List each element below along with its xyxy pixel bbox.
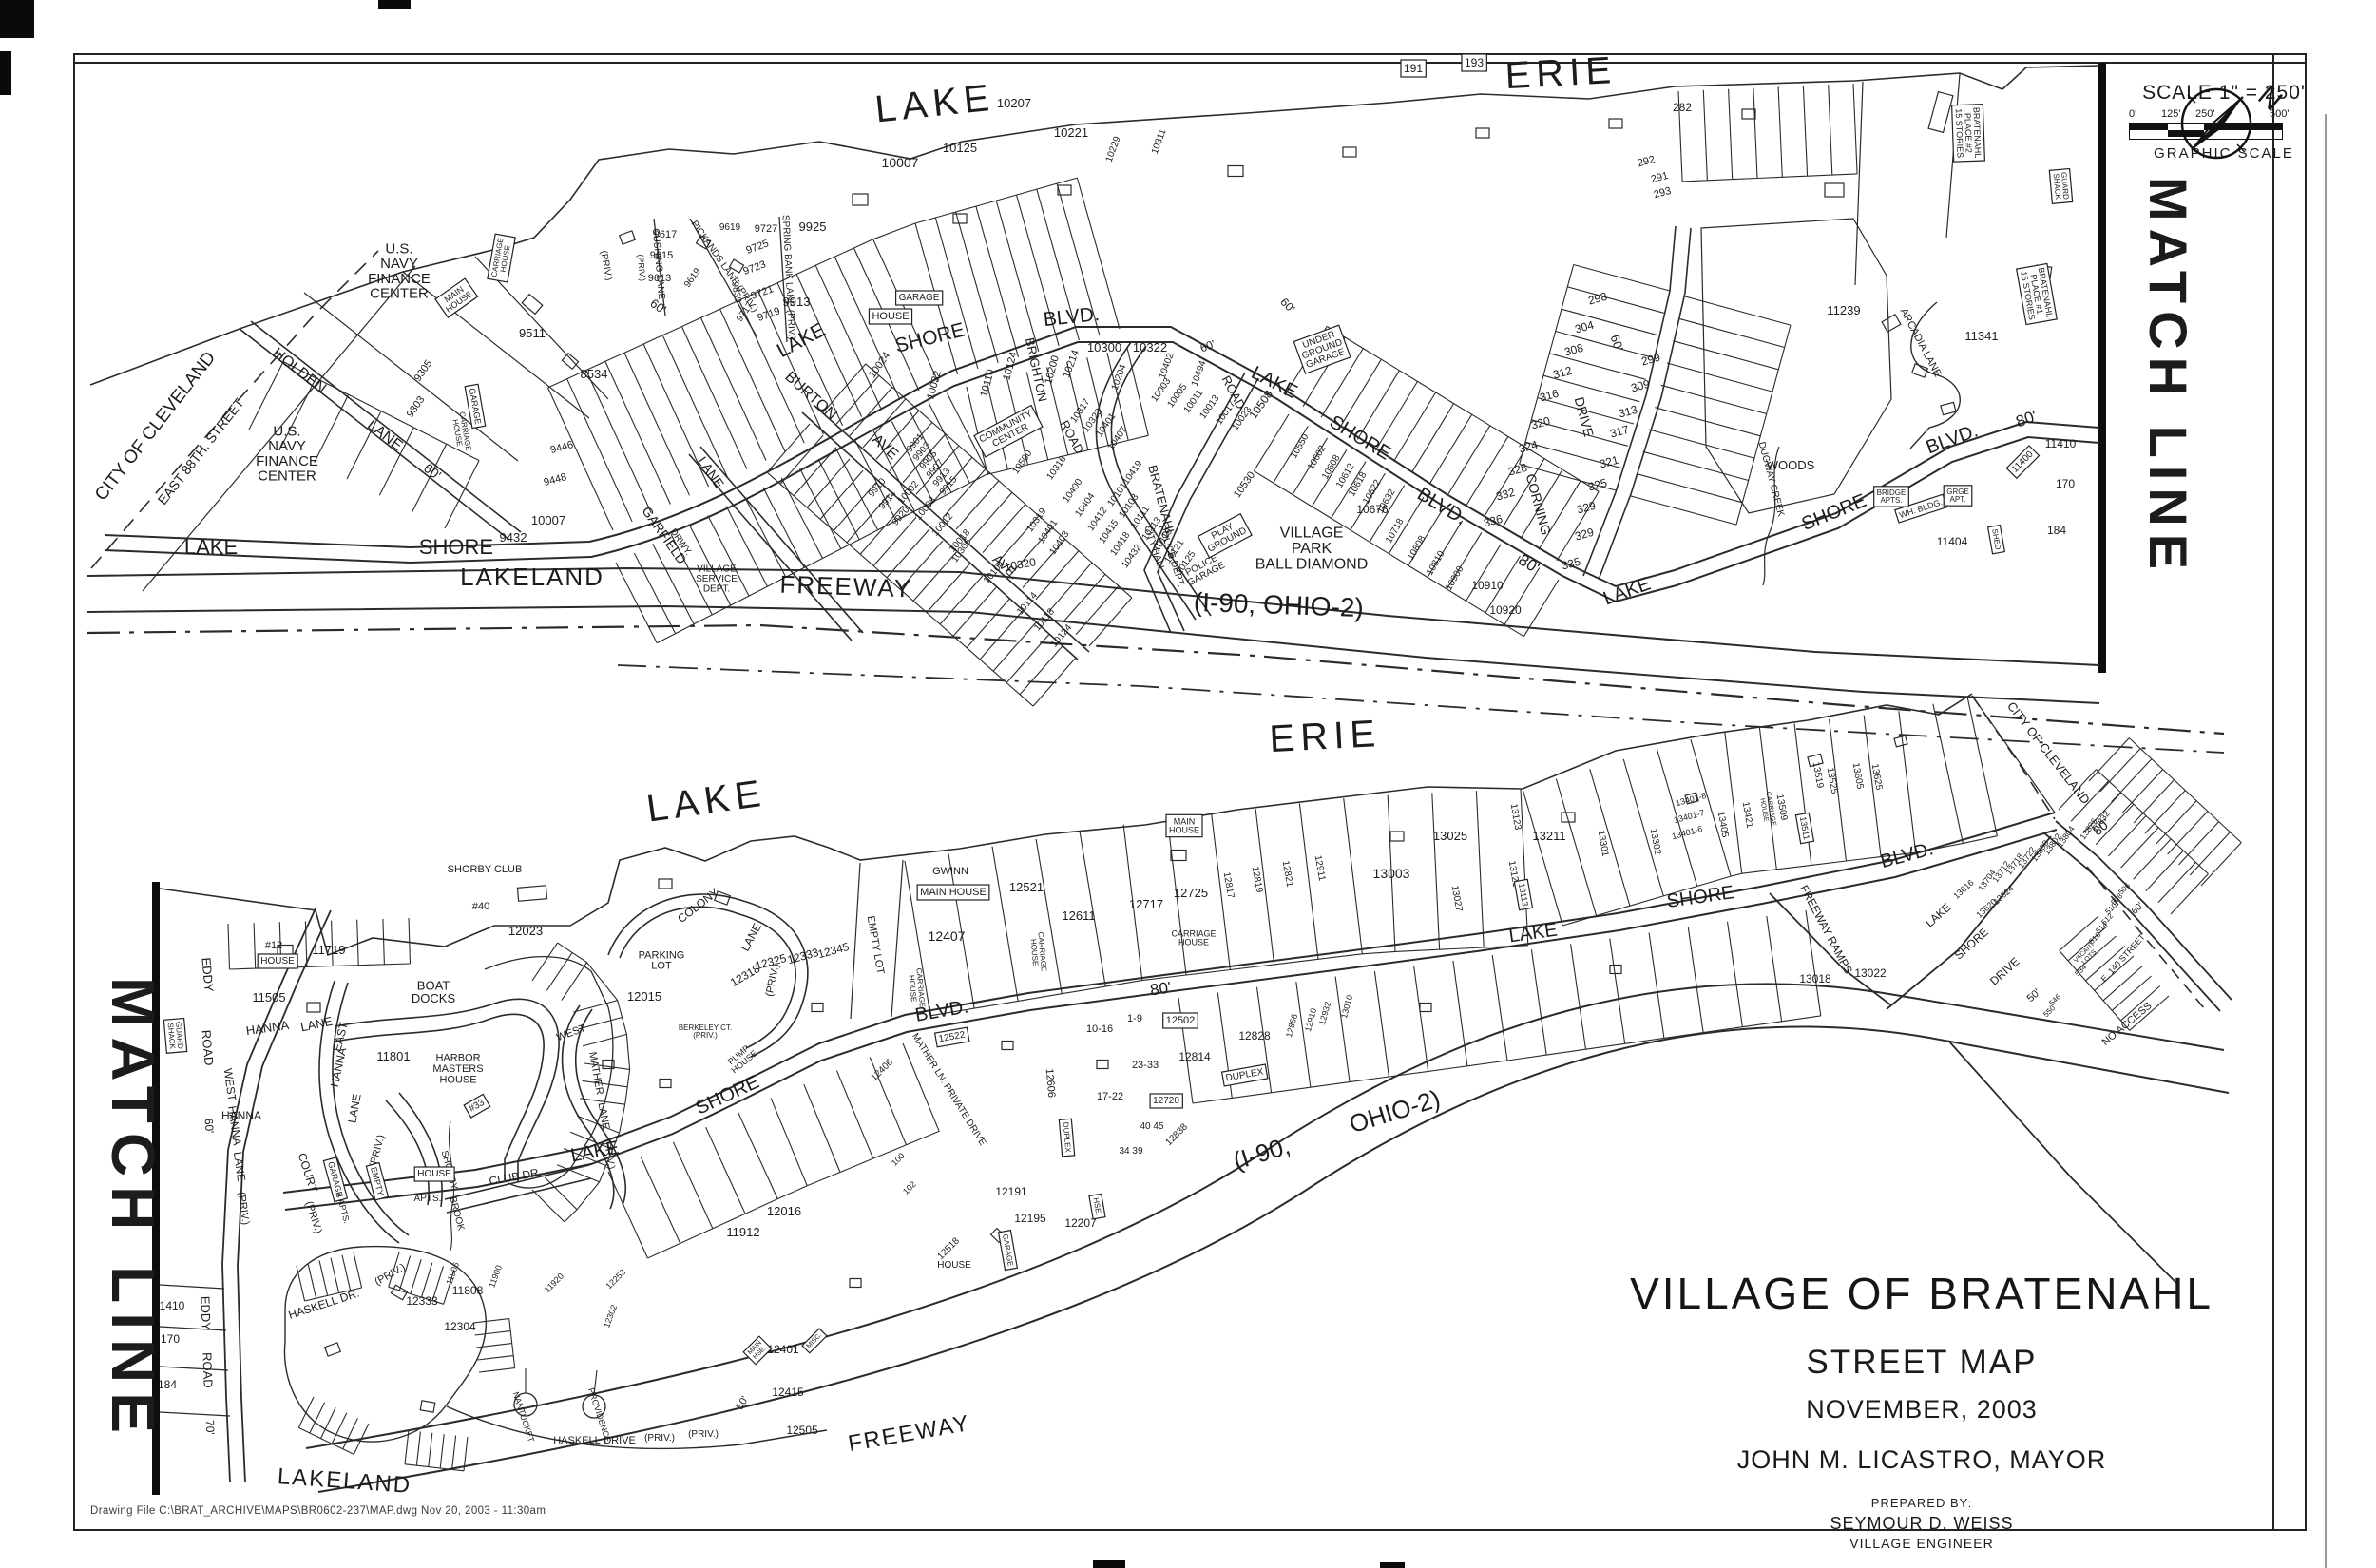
svg-text:23-33: 23-33 bbox=[1132, 1060, 1159, 1071]
svg-text:HARBORMASTERSHOUSE: HARBORMASTERSHOUSE bbox=[432, 1053, 483, 1086]
svg-text:308: 308 bbox=[1562, 341, 1584, 359]
svg-text:SHORE: SHORE bbox=[1665, 882, 1734, 912]
map-label: 9925 bbox=[799, 220, 827, 234]
map-label: 9303 bbox=[405, 394, 428, 420]
svg-text:9925: 9925 bbox=[799, 220, 827, 234]
svg-text:BLVD.: BLVD. bbox=[1924, 420, 1981, 458]
svg-text:332: 332 bbox=[1494, 486, 1516, 504]
map-label: LAKELAND bbox=[460, 563, 604, 591]
map-label: 11912 bbox=[726, 1225, 759, 1239]
svg-text:CITY OF CLEVELAND: CITY OF CLEVELAND bbox=[2004, 699, 2093, 807]
map-label: GRGEAPT. bbox=[1944, 486, 1972, 506]
map-label: 13123 bbox=[1508, 803, 1523, 832]
svg-text:1410: 1410 bbox=[160, 1299, 185, 1312]
map-label: 12821 bbox=[1280, 860, 1295, 889]
prepared-by-label: PREPARED BY: bbox=[1627, 1496, 2216, 1510]
svg-text:12015: 12015 bbox=[627, 989, 661, 1004]
map-label: 292 bbox=[1637, 154, 1657, 169]
svg-text:11920: 11920 bbox=[543, 1272, 565, 1294]
svg-text:11801: 11801 bbox=[376, 1049, 410, 1063]
map-label: 12838 bbox=[1164, 1121, 1191, 1148]
map-label: HASKELL DR. bbox=[287, 1287, 361, 1322]
map-label: 9725 bbox=[744, 238, 770, 257]
map-label: OHIO-2) bbox=[1346, 1084, 1444, 1138]
svg-text:184: 184 bbox=[2047, 524, 2066, 537]
map-label: 9446 bbox=[549, 439, 575, 456]
map-label: 12606 bbox=[1044, 1068, 1058, 1099]
svg-text:12911: 12911 bbox=[1313, 854, 1328, 882]
svg-text:LANE: LANE bbox=[738, 921, 764, 953]
svg-text:LAKE: LAKE bbox=[1507, 920, 1559, 947]
map-label: 12406 bbox=[870, 1057, 896, 1083]
svg-text:9913: 9913 bbox=[783, 295, 811, 309]
map-label: 11920 bbox=[543, 1272, 565, 1294]
map-label: 10110 bbox=[978, 368, 996, 398]
svg-text:VILLAGESERVICEDEPT.: VILLAGESERVICEDEPT. bbox=[696, 564, 738, 595]
building-footprints bbox=[278, 92, 2052, 1413]
map-label: #12 bbox=[265, 940, 282, 951]
map-label: 282 bbox=[1673, 101, 1692, 114]
map-label: 12023 bbox=[508, 924, 543, 938]
parcel-lot-lines bbox=[228, 84, 2241, 1471]
svg-text:BROOK: BROOK bbox=[447, 1195, 466, 1232]
drawing-file-note: Drawing File C:\BRAT_ARCHIVE\MAPS\BR0602… bbox=[90, 1505, 546, 1517]
svg-text:12191: 12191 bbox=[995, 1185, 1027, 1198]
scanned-street-map-sheet: MATCH LINEMATCH LINELAKEERIELAKEERIELAKE… bbox=[0, 0, 2376, 1568]
map-label: 80' bbox=[1515, 550, 1542, 577]
map-label: ROAD bbox=[1058, 418, 1087, 456]
map-label: 13625 bbox=[1869, 763, 1885, 792]
svg-text:13624: 13624 bbox=[1991, 884, 2015, 907]
svg-text:291: 291 bbox=[1650, 170, 1670, 185]
map-label: 11400 bbox=[2006, 446, 2039, 478]
map-label: 11906 bbox=[444, 1261, 461, 1286]
map-label: CARRIAGEHOUSE bbox=[488, 234, 515, 282]
svg-text:12717: 12717 bbox=[1129, 897, 1163, 911]
svg-text:13010: 13010 bbox=[1339, 994, 1354, 1020]
map-label: COURT bbox=[296, 1151, 321, 1194]
map-label: 317 bbox=[1608, 423, 1630, 441]
map-label: FREEWAY bbox=[779, 570, 913, 603]
svg-text:317: 317 bbox=[1608, 423, 1630, 441]
svg-text:VILLAGEPARKBALL DIAMOND: VILLAGEPARKBALL DIAMOND bbox=[1255, 525, 1369, 572]
svg-text:CARRIAGEHOUSE: CARRIAGEHOUSE bbox=[1757, 791, 1776, 828]
svg-text:10530: 10530 bbox=[1232, 469, 1257, 500]
lake-erie-label: ERIE bbox=[1504, 49, 1619, 97]
svg-text:11239: 11239 bbox=[1827, 303, 1860, 317]
lake-erie-label: ERIE bbox=[1269, 713, 1383, 760]
svg-text:#40: #40 bbox=[472, 901, 489, 912]
svg-text:SHORE: SHORE bbox=[1952, 926, 1991, 963]
svg-text:CARRIAGEHOUSE: CARRIAGEHOUSE bbox=[1028, 931, 1048, 972]
map-label: LAKE bbox=[1507, 920, 1559, 947]
map-label: 70' bbox=[203, 1420, 218, 1435]
svg-text:LAKE: LAKE bbox=[644, 773, 769, 831]
map-label: 184 bbox=[2047, 524, 2066, 537]
svg-text:70': 70' bbox=[203, 1420, 218, 1435]
map-label: 11410 bbox=[2045, 437, 2077, 450]
map-label: 1410 bbox=[160, 1299, 185, 1312]
svg-text:10200: 10200 bbox=[1043, 354, 1062, 386]
map-label: BRIDGEAPTS. bbox=[1874, 487, 1909, 507]
svg-text:9619: 9619 bbox=[719, 222, 741, 233]
map-label: 13301 bbox=[1596, 830, 1611, 858]
map-label: MISC. bbox=[802, 1329, 827, 1353]
svg-text:ROAD: ROAD bbox=[1058, 418, 1087, 456]
map-label: SHORE bbox=[693, 1072, 763, 1119]
map-label: PLAYGROUND bbox=[1198, 514, 1252, 558]
svg-text:10550: 10550 bbox=[1289, 432, 1312, 461]
svg-text:13301: 13301 bbox=[1596, 830, 1611, 858]
svg-text:12304: 12304 bbox=[444, 1320, 476, 1333]
svg-text:9615: 9615 bbox=[650, 250, 673, 261]
map-label: LANE bbox=[364, 417, 405, 454]
map-label: 10032 bbox=[925, 370, 944, 401]
svg-text:MATHER LN. PRIVATE DRIVE: MATHER LN. PRIVATE DRIVE bbox=[910, 1032, 987, 1148]
svg-text:12819: 12819 bbox=[1250, 866, 1265, 894]
scale-tick: 0' bbox=[2129, 108, 2136, 120]
map-label: ROAD bbox=[200, 1352, 215, 1388]
map-label: 304 bbox=[1573, 318, 1595, 336]
map-label: 308 bbox=[1562, 341, 1584, 359]
svg-text:10920: 10920 bbox=[1489, 603, 1522, 617]
svg-text:13616: 13616 bbox=[1951, 878, 1975, 901]
svg-text:10221: 10221 bbox=[1054, 125, 1088, 140]
svg-text:12606: 12606 bbox=[1044, 1068, 1058, 1099]
svg-text:10311: 10311 bbox=[1150, 127, 1169, 156]
map-label: 80' bbox=[1149, 979, 1173, 1000]
svg-text:CARRIAGEHOUSE: CARRIAGEHOUSE bbox=[907, 967, 927, 1008]
map-label: 9432 bbox=[500, 530, 527, 545]
svg-text:309: 309 bbox=[1629, 377, 1651, 395]
map-label: 11900 bbox=[487, 1264, 504, 1289]
svg-text:282: 282 bbox=[1673, 101, 1692, 114]
map-label: 13401-8 bbox=[1675, 791, 1707, 808]
svg-text:HOUSE: HOUSE bbox=[260, 956, 295, 966]
scale-tick: 500' bbox=[2270, 108, 2289, 120]
svg-text:LAKE: LAKE bbox=[1923, 901, 1953, 930]
svg-text:312: 312 bbox=[1551, 364, 1573, 382]
map-label: SHED bbox=[1988, 526, 2005, 554]
map-label: 13018 bbox=[1799, 972, 1831, 985]
map-label: 13519 bbox=[1811, 761, 1826, 790]
svg-text:9619: 9619 bbox=[682, 266, 703, 290]
svg-text:10012: 10012 bbox=[930, 511, 956, 539]
svg-text:9432: 9432 bbox=[500, 530, 527, 545]
map-label: 10550 bbox=[1289, 432, 1312, 461]
svg-text:ROAD: ROAD bbox=[199, 1029, 216, 1066]
map-label: 10808 bbox=[1406, 534, 1428, 563]
map-label: HANNA bbox=[221, 1109, 261, 1122]
svg-text:10214: 10214 bbox=[1061, 349, 1082, 380]
svg-text:LANE: LANE bbox=[345, 1093, 363, 1124]
svg-text:170: 170 bbox=[2056, 477, 2075, 490]
svg-text:HOUSE: HOUSE bbox=[872, 311, 909, 322]
svg-text:SHORBY CLUB: SHORBY CLUB bbox=[448, 864, 523, 875]
map-label: 10214 bbox=[1061, 349, 1082, 380]
map-label: 12407 bbox=[929, 928, 966, 944]
map-label: (PRIV.) bbox=[644, 1433, 675, 1444]
map-label: 11719 bbox=[312, 943, 345, 957]
svg-text:LAKE: LAKE bbox=[873, 77, 997, 131]
svg-text:12253: 12253 bbox=[604, 1267, 627, 1291]
svg-text:GUARDSHACK: GUARDSHACK bbox=[2052, 172, 2071, 201]
svg-text:HANNA: HANNA bbox=[245, 1018, 290, 1038]
map-label: 13616 bbox=[1951, 878, 1975, 901]
svg-text:(PRIV.): (PRIV.) bbox=[644, 1433, 675, 1444]
map-label: 12819 bbox=[1250, 866, 1265, 894]
svg-text:13605: 13605 bbox=[1850, 762, 1866, 791]
map-label: VILLAGESERVICEDEPT. bbox=[696, 564, 738, 595]
svg-text:GWINN: GWINN bbox=[932, 866, 968, 877]
map-label: GARAGE bbox=[999, 1231, 1018, 1271]
map-label: 321 bbox=[1598, 453, 1619, 471]
map-label: 12518 bbox=[936, 1235, 963, 1262]
svg-text:12415: 12415 bbox=[772, 1386, 804, 1399]
map-label: 12345 bbox=[816, 940, 851, 961]
map-label: LANE bbox=[345, 1093, 363, 1124]
svg-text:12016: 12016 bbox=[767, 1204, 801, 1218]
svg-text:12502: 12502 bbox=[1166, 1015, 1196, 1026]
map-label: MAIN HOUSE bbox=[917, 885, 989, 900]
svg-text:SHORE: SHORE bbox=[1799, 490, 1869, 535]
svg-text:GRGEAPT.: GRGEAPT. bbox=[1946, 488, 1969, 504]
svg-text:CARRIAGEHOUSE: CARRIAGEHOUSE bbox=[1171, 928, 1216, 947]
svg-text:LANE: LANE bbox=[299, 1014, 335, 1035]
svg-text:13302: 13302 bbox=[1648, 828, 1663, 856]
svg-text:13401-7: 13401-7 bbox=[1673, 808, 1705, 825]
map-label: 10676 bbox=[1356, 503, 1389, 516]
map-label: LAKE bbox=[1600, 573, 1654, 609]
map-label: 8534 bbox=[581, 367, 608, 381]
map-label: 10007 bbox=[882, 155, 919, 170]
map-label: BOATDOCKS bbox=[412, 978, 456, 1005]
map-label: WEST bbox=[555, 1023, 587, 1043]
svg-text:12518: 12518 bbox=[936, 1235, 963, 1262]
map-label: EMPTY LOT bbox=[865, 915, 887, 976]
svg-text:10110: 10110 bbox=[978, 368, 996, 398]
map-label: 23-33 bbox=[1132, 1060, 1159, 1071]
map-label: 316 bbox=[1538, 387, 1560, 405]
svg-text:60': 60' bbox=[1277, 296, 1297, 316]
svg-text:WEST: WEST bbox=[221, 1067, 240, 1102]
svg-text:(PRIV.): (PRIV.) bbox=[236, 1191, 252, 1225]
svg-text:11808: 11808 bbox=[452, 1284, 484, 1297]
map-label: BROOK bbox=[447, 1195, 466, 1232]
svg-text:9723: 9723 bbox=[741, 258, 767, 277]
svg-text:320: 320 bbox=[1529, 414, 1551, 432]
map-label: 12521 bbox=[1009, 880, 1044, 894]
map-label: 325 bbox=[1586, 476, 1608, 494]
map-label: U.S.NAVYFINANCECENTER bbox=[256, 424, 318, 485]
map-label: 12717 bbox=[1129, 897, 1163, 911]
mayor-credit: JOHN M. LICASTRO, MAYOR bbox=[1627, 1445, 2216, 1475]
map-label: 12302 bbox=[602, 1304, 619, 1329]
svg-text:60': 60' bbox=[421, 460, 444, 483]
svg-text:DRIVE: DRIVE bbox=[1987, 955, 2022, 988]
svg-text:13018: 13018 bbox=[1799, 972, 1831, 985]
map-label: 13022 bbox=[1854, 966, 1887, 980]
map-label: 11505 bbox=[252, 990, 285, 1004]
svg-text:HANNA: HANNA bbox=[221, 1109, 261, 1122]
map-label: PARKINGLOT bbox=[639, 949, 685, 971]
svg-text:FREEWAY: FREEWAY bbox=[846, 1410, 972, 1457]
svg-text:9727: 9727 bbox=[755, 223, 777, 235]
map-label: 12505 bbox=[786, 1424, 818, 1437]
svg-text:ERIE: ERIE bbox=[1504, 49, 1619, 97]
map-label: PUMPHOUSE bbox=[724, 1042, 759, 1075]
svg-text:CITY OF CLEVELAND: CITY OF CLEVELAND bbox=[91, 348, 220, 505]
svg-text:10808: 10808 bbox=[1406, 534, 1428, 563]
map-label: HOUSE bbox=[258, 954, 297, 968]
svg-text:10125: 10125 bbox=[943, 141, 977, 155]
svg-text:SHORE: SHORE bbox=[419, 535, 493, 559]
svg-text:10229: 10229 bbox=[1104, 135, 1123, 163]
scale-tick: 250' bbox=[2195, 108, 2214, 120]
map-label: 12910 bbox=[1303, 1007, 1318, 1033]
svg-text:12821: 12821 bbox=[1280, 860, 1295, 889]
svg-text:10500: 10500 bbox=[1010, 449, 1034, 476]
map-subtitle: STREET MAP bbox=[1627, 1344, 2216, 1382]
map-label: 13401-7 bbox=[1673, 808, 1705, 825]
svg-text:12195: 12195 bbox=[1014, 1212, 1046, 1225]
svg-text:12401: 12401 bbox=[767, 1343, 799, 1356]
svg-text:COURT: COURT bbox=[296, 1151, 321, 1194]
svg-text:13405: 13405 bbox=[1715, 811, 1731, 839]
map-label: 13401-6 bbox=[1671, 824, 1703, 841]
map-label: 10124 bbox=[1001, 351, 1020, 382]
map-label: HANNA bbox=[328, 1046, 349, 1088]
svg-text:299: 299 bbox=[1639, 351, 1661, 369]
map-label: 80' bbox=[2013, 407, 2039, 430]
svg-text:ARCADIA LANE: ARCADIA LANE bbox=[1898, 306, 1944, 378]
map-label: 11404 bbox=[1937, 535, 1968, 548]
map-label: SHORE bbox=[1952, 926, 1991, 963]
svg-text:13025: 13025 bbox=[1433, 829, 1467, 843]
svg-text:10494: 10494 bbox=[1190, 359, 1209, 388]
svg-text:LAKE: LAKE bbox=[1600, 573, 1654, 609]
map-label: MAINHSE. bbox=[743, 1336, 772, 1365]
map-label: 9727 bbox=[755, 223, 777, 235]
map-label: BERKELEY CT.(PRIV.) bbox=[679, 1023, 732, 1040]
map-label: SHORE bbox=[1799, 490, 1869, 535]
svg-text:BERKELEY CT.(PRIV.): BERKELEY CT.(PRIV.) bbox=[679, 1023, 732, 1040]
map-label: LAKELAND bbox=[277, 1463, 412, 1499]
svg-text:12333: 12333 bbox=[786, 946, 820, 966]
svg-text:BRIDGEAPTS.: BRIDGEAPTS. bbox=[1877, 488, 1907, 505]
svg-text:ERIE: ERIE bbox=[1269, 713, 1383, 760]
svg-text:HASKELL DR.: HASKELL DR. bbox=[287, 1287, 361, 1322]
svg-text:11906: 11906 bbox=[444, 1261, 461, 1286]
map-label: 13302 bbox=[1648, 828, 1663, 856]
svg-text:13027: 13027 bbox=[1449, 885, 1465, 913]
map-label: DUPLEX bbox=[1222, 1064, 1268, 1086]
map-label: 13405 bbox=[1715, 811, 1731, 839]
map-label: SHORE bbox=[419, 535, 493, 559]
map-label: 9617 bbox=[654, 229, 677, 240]
svg-text:10207: 10207 bbox=[997, 96, 1031, 110]
svg-text:ROAD: ROAD bbox=[200, 1352, 215, 1388]
match-line-label-south: MATCH LINE bbox=[99, 977, 167, 1443]
map-label: 9619 bbox=[719, 222, 741, 233]
svg-text:34 39: 34 39 bbox=[1119, 1146, 1142, 1157]
map-label: 12502 bbox=[1163, 1013, 1198, 1028]
svg-text:11404: 11404 bbox=[1937, 535, 1968, 548]
svg-text:12333: 12333 bbox=[406, 1294, 438, 1308]
svg-text:10007: 10007 bbox=[531, 513, 565, 527]
svg-text:9448: 9448 bbox=[543, 471, 568, 488]
svg-text:(PRIV.): (PRIV.) bbox=[636, 254, 647, 281]
svg-text:13003: 13003 bbox=[1373, 866, 1410, 881]
map-label: 60' bbox=[1198, 337, 1217, 355]
map-label: 10810 bbox=[1425, 549, 1447, 578]
svg-text:9725: 9725 bbox=[744, 238, 770, 257]
map-label: LAKE bbox=[774, 319, 829, 363]
svg-text:80': 80' bbox=[1149, 979, 1173, 1000]
svg-text:9617: 9617 bbox=[654, 229, 677, 240]
svg-text:12407: 12407 bbox=[929, 928, 966, 944]
map-label: VILLAGEPARKBALL DIAMOND bbox=[1255, 525, 1369, 572]
svg-text:LAKELAND: LAKELAND bbox=[460, 563, 604, 591]
svg-text:DUGWAY CREEK: DUGWAY CREEK bbox=[1756, 441, 1787, 518]
map-label: BURTON bbox=[781, 369, 839, 423]
svg-text:13519: 13519 bbox=[1811, 761, 1826, 790]
map-label: 12866 bbox=[1284, 1013, 1299, 1039]
svg-text:HANNA: HANNA bbox=[328, 1046, 349, 1088]
svg-text:EDDY: EDDY bbox=[199, 957, 216, 993]
map-label: CARRIAGEHOUSE bbox=[1757, 791, 1776, 828]
map-label: 191 bbox=[1401, 60, 1426, 77]
svg-text:10316: 10316 bbox=[1044, 454, 1068, 482]
svg-text:12838: 12838 bbox=[1164, 1121, 1191, 1148]
svg-text:12814: 12814 bbox=[1178, 1050, 1211, 1063]
svg-text:313: 313 bbox=[1617, 403, 1638, 421]
svg-text:12207: 12207 bbox=[1064, 1216, 1097, 1230]
svg-text:FREEWAY: FREEWAY bbox=[779, 570, 913, 603]
map-label: 10-16 bbox=[1086, 1023, 1113, 1035]
svg-text:80': 80' bbox=[2013, 407, 2039, 430]
map-label: UNDERGROUNDGARAGE bbox=[1293, 325, 1351, 373]
svg-text:13421: 13421 bbox=[1740, 801, 1755, 830]
map-label: MATHER bbox=[586, 1051, 605, 1096]
map-label: 309 bbox=[1629, 377, 1651, 395]
svg-text:10007: 10007 bbox=[882, 155, 919, 170]
svg-text:12828: 12828 bbox=[1238, 1029, 1271, 1042]
engineer-name: SEYMOUR D. WEISS bbox=[1627, 1514, 2216, 1534]
map-label: 10900 bbox=[1444, 564, 1466, 593]
lake-erie-label: LAKE bbox=[873, 77, 997, 131]
map-label: 13027 bbox=[1449, 885, 1465, 913]
map-label: 320 bbox=[1529, 414, 1551, 432]
map-label: 13421 bbox=[1740, 801, 1755, 830]
map-label: (PRIV.) bbox=[236, 1191, 252, 1225]
svg-text:BURTON: BURTON bbox=[781, 369, 839, 423]
map-label: 12911 bbox=[1313, 854, 1328, 882]
map-label: GUARDSHACK bbox=[163, 1018, 186, 1053]
map-label: 10221 bbox=[1054, 125, 1088, 140]
svg-text:11505: 11505 bbox=[252, 990, 285, 1004]
map-label: BLVD. bbox=[1924, 420, 1981, 458]
map-label: ROAD bbox=[199, 1029, 216, 1066]
map-label: 13025 bbox=[1433, 829, 1467, 843]
svg-text:U.S.NAVYFINANCECENTER: U.S.NAVYFINANCECENTER bbox=[256, 424, 318, 485]
svg-text:8534: 8534 bbox=[581, 367, 608, 381]
map-label: DRIVE bbox=[1987, 955, 2022, 988]
map-label: GARAGE bbox=[896, 291, 943, 305]
map-label: 13010 bbox=[1339, 994, 1354, 1020]
scale-block: N SCALE 1" = 250' 0' 125' 250' 500' GRAP… bbox=[2129, 74, 2319, 162]
map-label: (PRIV.) bbox=[688, 1429, 719, 1440]
